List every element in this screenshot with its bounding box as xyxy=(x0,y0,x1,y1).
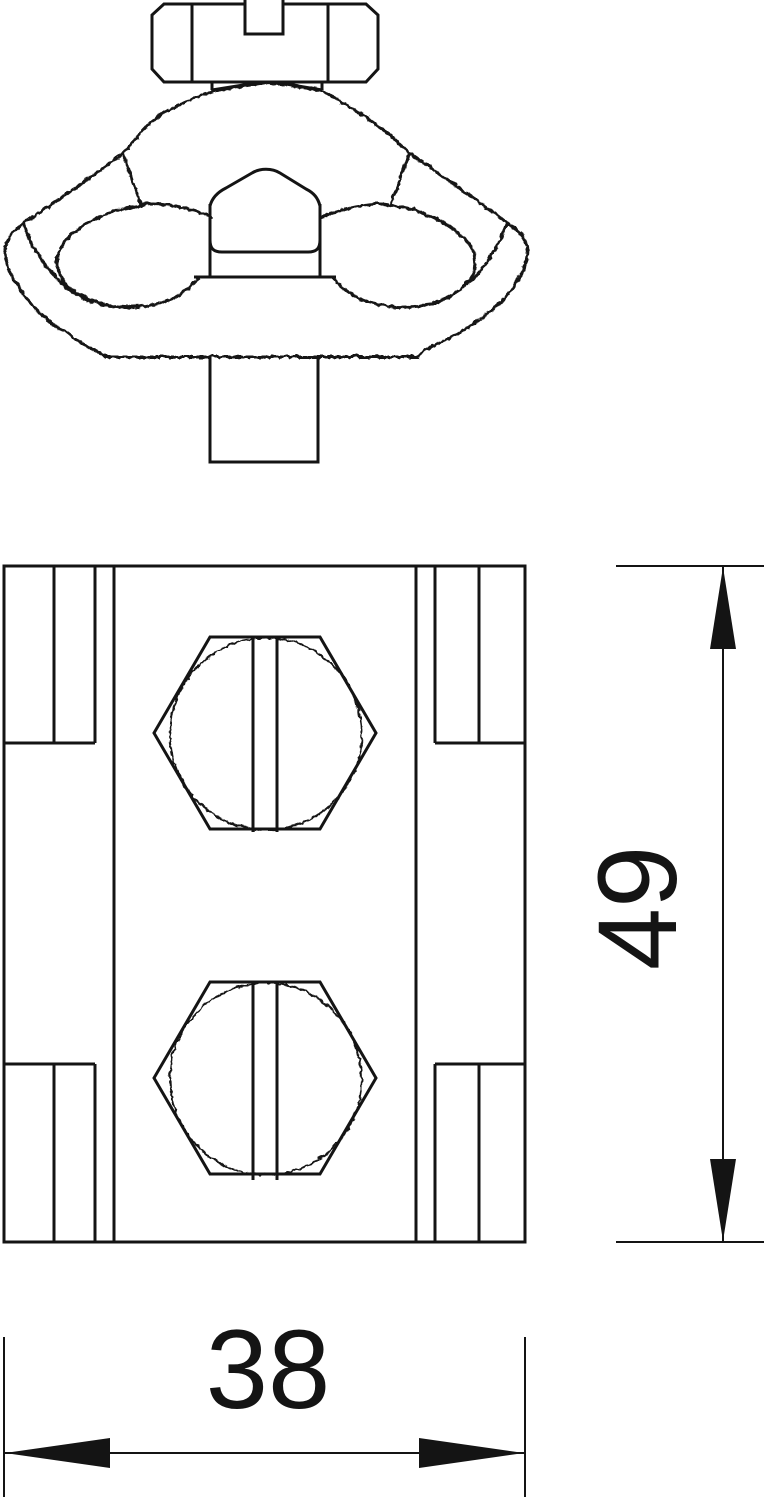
technical-drawing-canvas: 49 38 xyxy=(0,0,766,1500)
bolt-head-bottom-slot-fill xyxy=(254,985,276,1171)
bolt-head-bottom xyxy=(154,981,376,1180)
corner-block-top-right xyxy=(435,566,525,743)
right-conductor-lobe xyxy=(320,203,474,306)
bolt-shaft xyxy=(194,169,336,277)
left-conductor-lobe xyxy=(56,203,210,306)
width-arrowhead-left xyxy=(5,1438,110,1468)
dimension-height: 49 xyxy=(575,566,764,1242)
height-arrowhead-down xyxy=(710,1159,736,1241)
width-dimension-label: 38 xyxy=(206,1307,331,1432)
bolt-head-top xyxy=(154,636,376,832)
clamp-stem xyxy=(210,357,318,462)
dimension-width: 38 xyxy=(4,1307,525,1497)
bolt-shaft-rounded-bar xyxy=(210,240,320,252)
bolt-head-top-slot-fill xyxy=(254,640,276,826)
width-arrowhead-right xyxy=(419,1438,524,1468)
right-seam-line xyxy=(390,152,408,205)
side-view xyxy=(4,0,526,462)
height-dimension-label: 49 xyxy=(575,846,700,971)
technical-drawing-page: 49 38 xyxy=(0,0,766,1500)
corner-block-bottom-left xyxy=(4,1064,95,1242)
height-arrowhead-up xyxy=(710,567,736,649)
left-seam-line xyxy=(122,152,140,205)
clamp-body-outline xyxy=(4,81,526,356)
bolt-shaft-tip xyxy=(210,169,320,206)
corner-block-top-left xyxy=(4,566,95,743)
corner-block-bottom-right xyxy=(435,1064,525,1242)
hex-nut xyxy=(152,0,378,82)
plan-view xyxy=(4,566,525,1242)
clamp-body-wavy-group xyxy=(4,81,526,356)
left-fold-line xyxy=(22,222,110,305)
nut-slot-fill xyxy=(246,0,282,33)
